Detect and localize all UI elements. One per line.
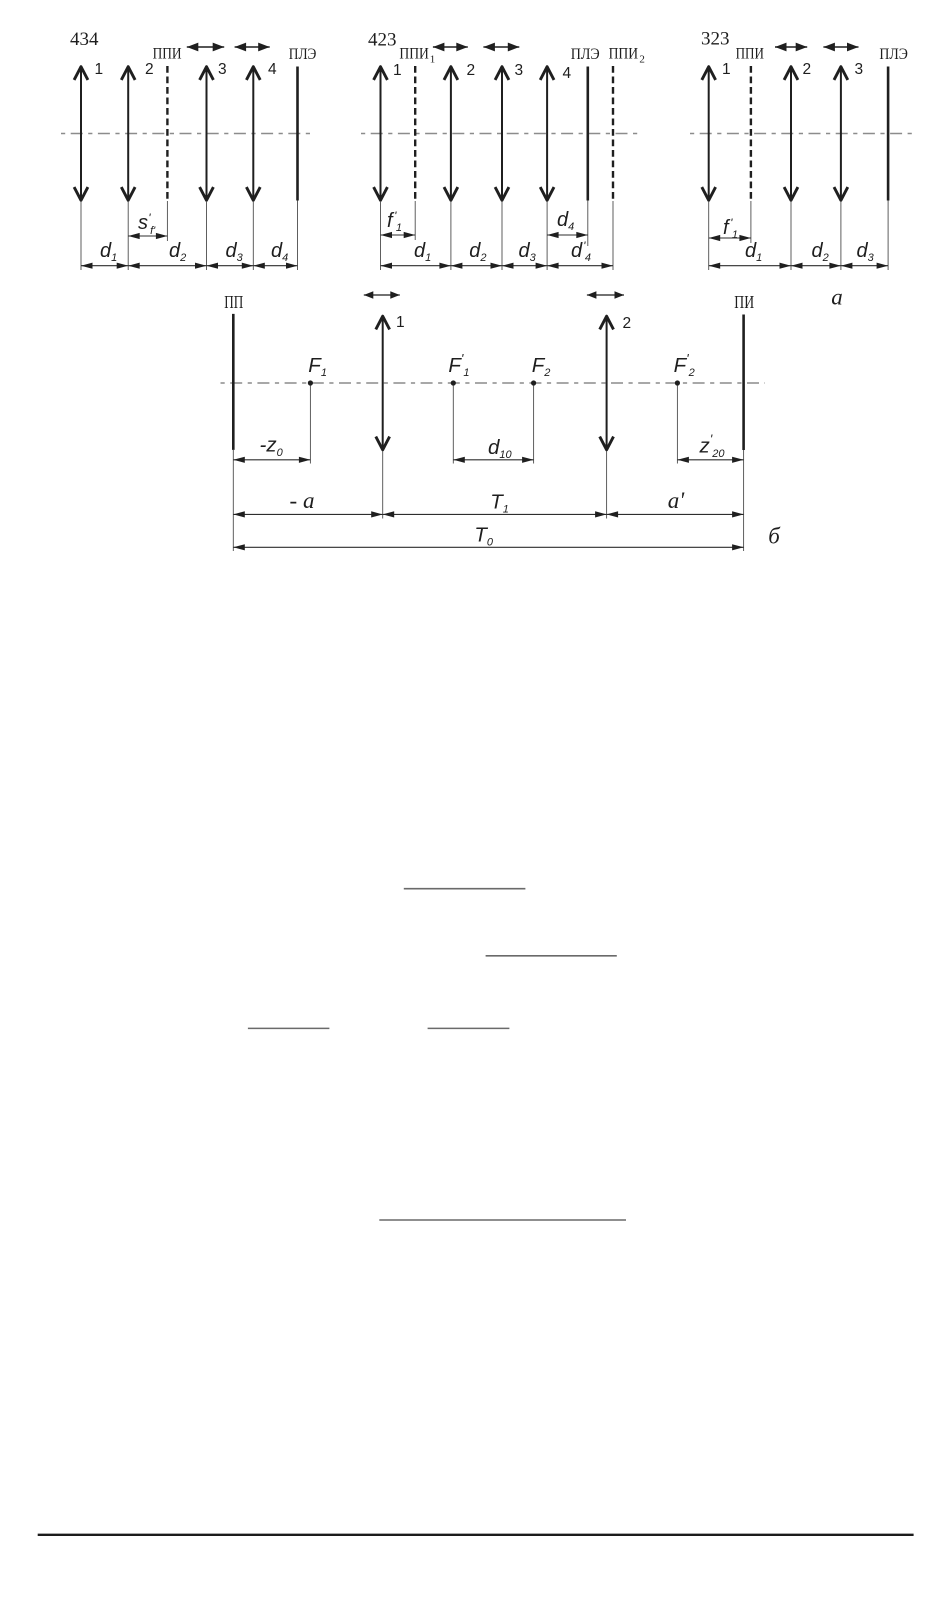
svg-text:d3: d3	[519, 240, 537, 264]
svg-text:323: 323	[701, 29, 730, 50]
svg-text:ППИ: ППИ	[153, 45, 182, 62]
svg-text:2: 2	[467, 62, 476, 79]
svg-text:2: 2	[803, 61, 812, 78]
svg-text:1: 1	[95, 61, 104, 78]
svg-text:ППИ: ППИ	[399, 45, 429, 62]
svg-text:d3: d3	[226, 240, 244, 264]
svg-text:а: а	[831, 284, 843, 309]
svg-text:2: 2	[623, 315, 632, 332]
svg-text:-z0: -z0	[260, 434, 284, 459]
svg-text:а': а'	[668, 488, 686, 513]
svg-text:z'20: z'20	[699, 432, 726, 460]
svg-text:T0: T0	[474, 524, 494, 549]
svg-text:2: 2	[145, 61, 154, 78]
svg-text:4: 4	[268, 61, 277, 78]
svg-text:3: 3	[515, 62, 524, 79]
svg-text:d2: d2	[469, 240, 486, 264]
svg-text:F2: F2	[532, 354, 551, 379]
svg-text:d2: d2	[812, 240, 829, 264]
svg-text:d1: d1	[414, 240, 431, 264]
svg-text:4: 4	[563, 65, 572, 82]
svg-text:F1: F1	[308, 354, 327, 379]
svg-text:d2: d2	[169, 240, 186, 264]
svg-text:d3: d3	[857, 240, 875, 264]
svg-text:d1: d1	[100, 240, 117, 264]
svg-text:423: 423	[368, 30, 397, 51]
svg-text:ПИ: ПИ	[734, 292, 754, 312]
svg-text:d1: d1	[745, 240, 762, 264]
svg-text:3: 3	[855, 61, 864, 78]
svg-text:1: 1	[430, 53, 436, 65]
svg-text:ПП: ПП	[224, 292, 243, 312]
svg-text:ПЛЭ: ПЛЭ	[879, 46, 908, 63]
svg-text:б: б	[768, 524, 781, 549]
svg-text:1: 1	[722, 61, 731, 78]
svg-text:T1: T1	[490, 490, 509, 515]
svg-text:s'f': s'f'	[138, 211, 156, 237]
svg-text:f'1: f'1	[723, 216, 738, 241]
svg-text:F'2: F'2	[674, 351, 695, 379]
svg-text:d4: d4	[557, 209, 574, 233]
svg-text:d10: d10	[488, 436, 513, 461]
svg-text:d4: d4	[271, 240, 288, 264]
svg-text:ППИ: ППИ	[736, 45, 765, 62]
svg-text:F'1: F'1	[448, 351, 469, 379]
svg-text:1: 1	[393, 62, 402, 79]
svg-text:ПЛЭ: ПЛЭ	[289, 46, 317, 63]
svg-text:ППИ: ППИ	[609, 45, 639, 62]
svg-text:1: 1	[396, 314, 405, 331]
svg-text:3: 3	[218, 61, 227, 78]
svg-text:- а: - а	[290, 488, 315, 513]
svg-text:2: 2	[639, 53, 645, 65]
svg-text:f'1: f'1	[387, 209, 402, 234]
svg-text:ПЛЭ: ПЛЭ	[571, 46, 600, 63]
svg-text:434: 434	[70, 29, 99, 50]
